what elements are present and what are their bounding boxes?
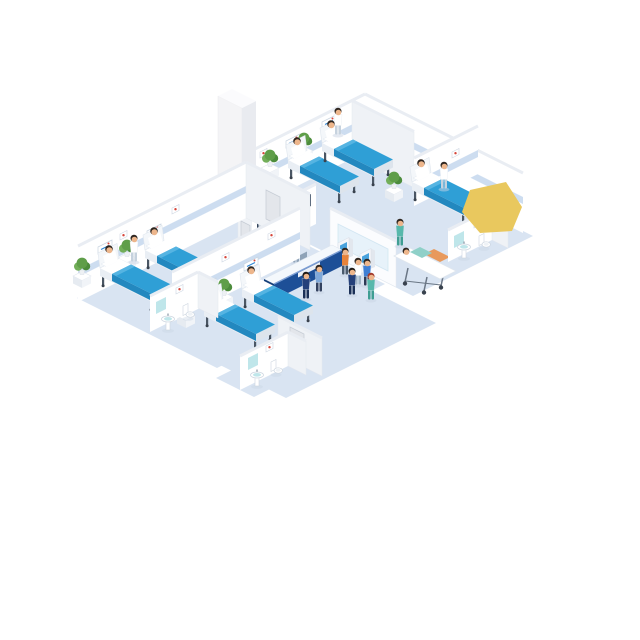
hospital-ward-illustration: Hospital Ward Isometric Illustration	[0, 0, 640, 640]
illustration-canvas: Hospital Ward Isometric Illustration	[0, 0, 640, 640]
